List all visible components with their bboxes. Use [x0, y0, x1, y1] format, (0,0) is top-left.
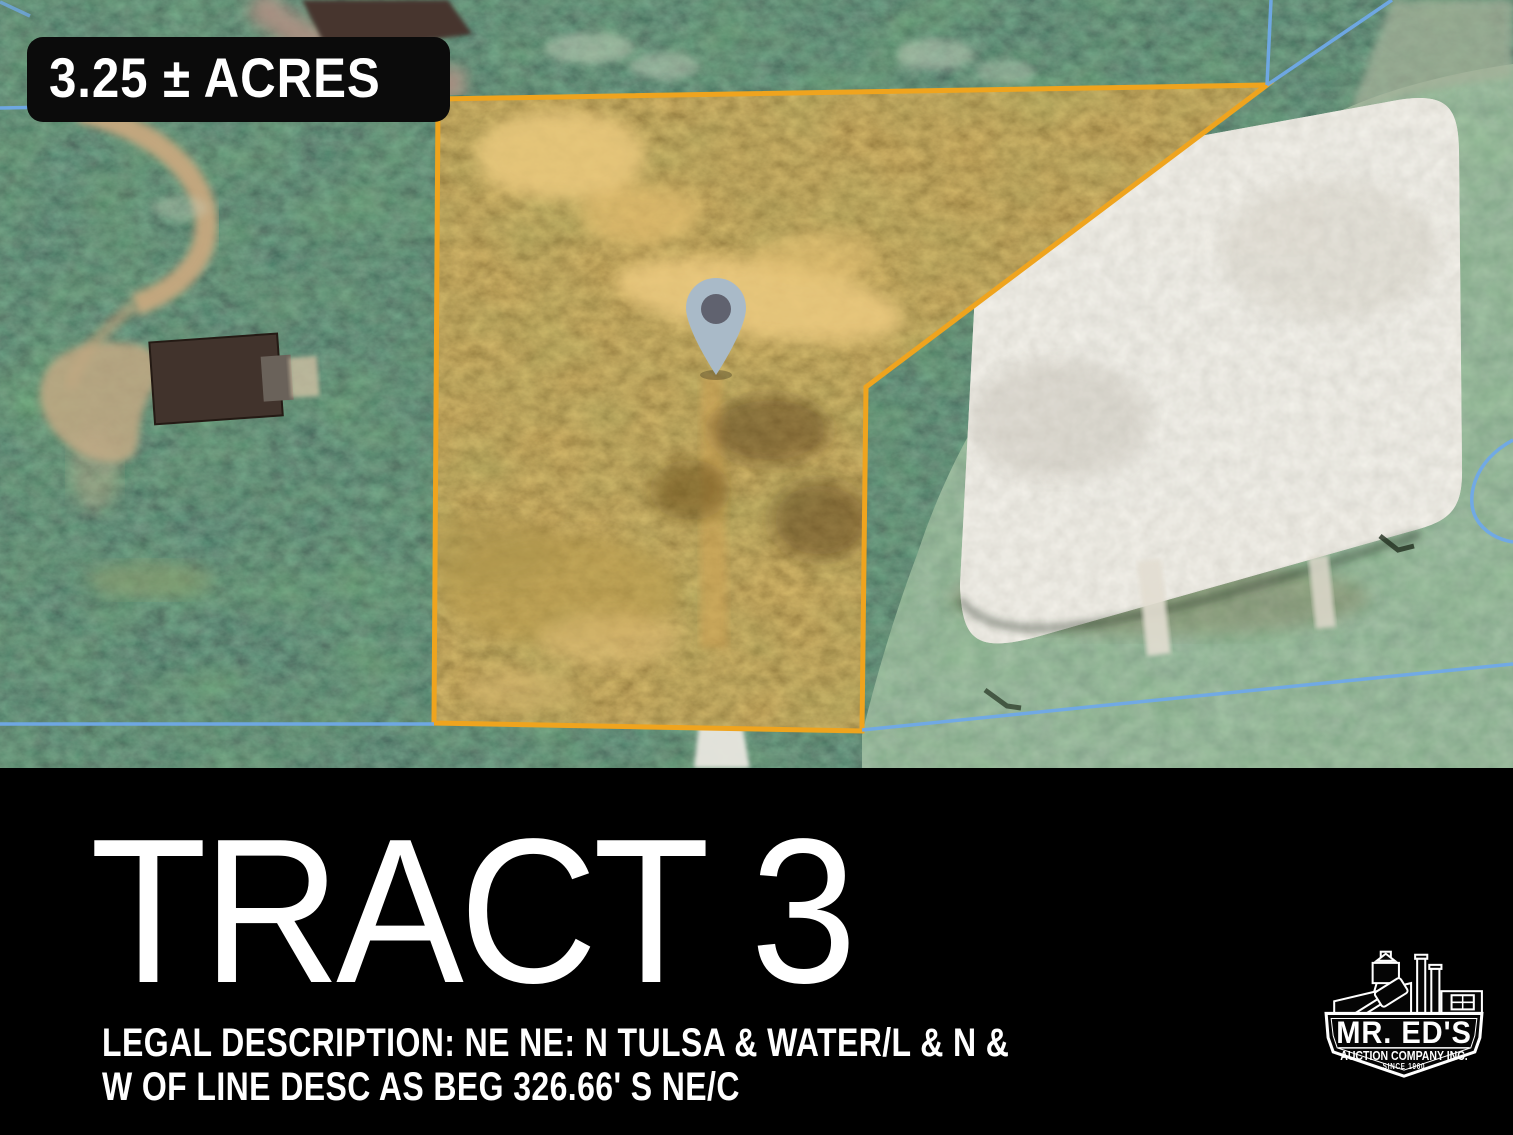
- logo-since: SINCE 1960: [1383, 1062, 1425, 1071]
- tract-auction-flyer: 3.25 ± ACRES TRACT 3 LEGAL DESCRIPTION: …: [0, 0, 1513, 1135]
- tract-title: TRACT 3: [90, 808, 852, 1014]
- auction-company-logo: MR. ED'S AUCTION COMPANY INC. SINCE 1960: [1318, 940, 1490, 1098]
- logo-plaque: MR. ED'S AUCTION COMPANY INC. SINCE 1960: [1326, 1013, 1482, 1076]
- legal-line-1: LEGAL DESCRIPTION: NE NE: N TULSA & WATE…: [102, 1021, 1009, 1065]
- logo-name: MR. ED'S: [1336, 1015, 1472, 1050]
- acreage-badge: 3.25 ± ACRES: [27, 37, 450, 122]
- logo-subtitle: AUCTION COMPANY INC.: [1340, 1049, 1467, 1063]
- legal-line-2: W OF LINE DESC AS BEG 326.66' S NE/C: [102, 1065, 1009, 1109]
- bottom-banner: TRACT 3 LEGAL DESCRIPTION: NE NE: N TULS…: [0, 768, 1513, 1135]
- legal-description: LEGAL DESCRIPTION: NE NE: N TULSA & WATE…: [102, 1021, 1009, 1109]
- acreage-label: 3.25 ± ACRES: [49, 45, 381, 110]
- satellite-map: 3.25 ± ACRES: [0, 0, 1513, 768]
